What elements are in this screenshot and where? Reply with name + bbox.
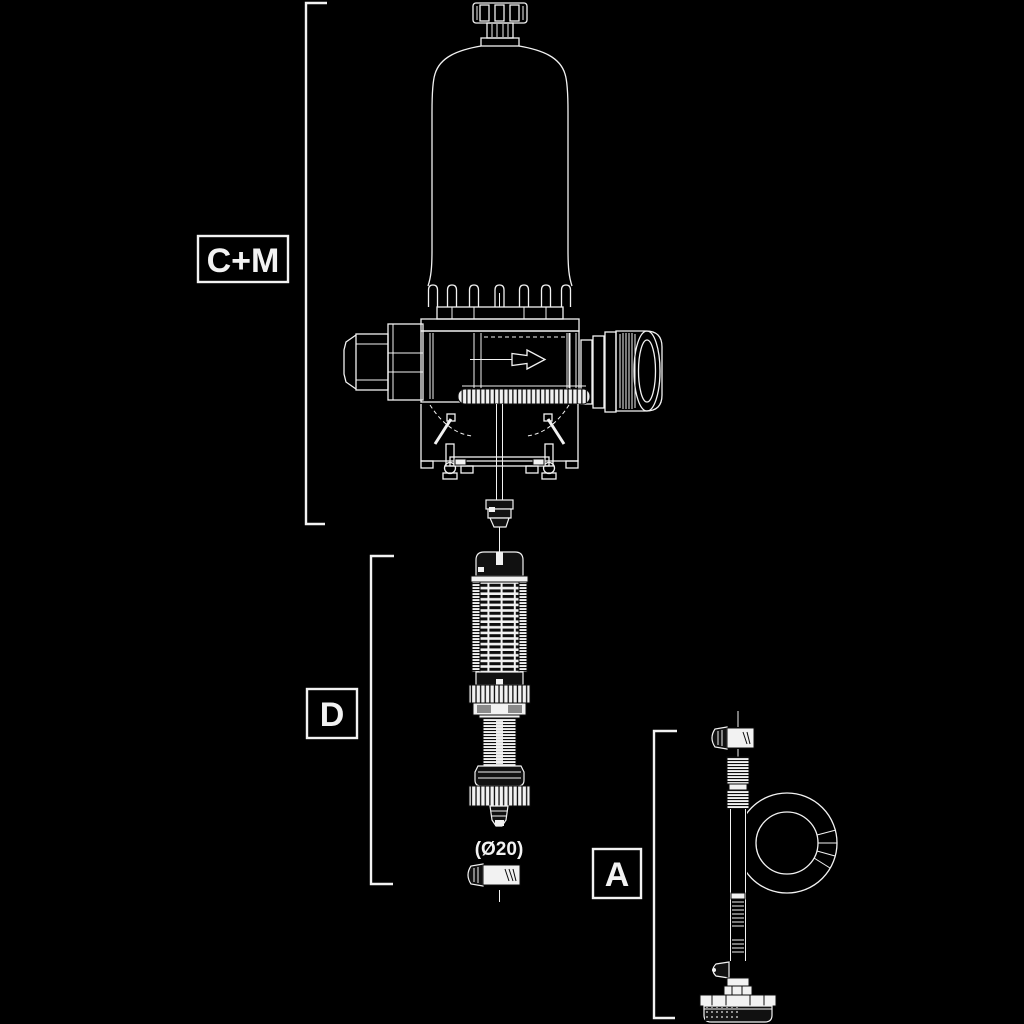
cylinder-top-cap xyxy=(476,552,523,576)
bracket-line-a xyxy=(654,731,677,1018)
diameter-note: (Ø20) xyxy=(475,839,524,860)
tube-joint xyxy=(729,784,747,790)
cylinder-bottom-cap xyxy=(476,672,523,685)
label-a: A xyxy=(605,856,630,894)
mounting-clamp xyxy=(421,404,578,500)
hose-barb-fitting-top xyxy=(712,727,754,749)
adjustment-knob xyxy=(473,3,527,46)
label-d: D xyxy=(320,696,345,734)
tube-rib-marks-upper xyxy=(732,902,744,926)
dimension-bracket-c-m: C+M xyxy=(198,3,327,524)
right-outlet-connector xyxy=(581,331,662,412)
label-c-m: C+M xyxy=(207,242,280,280)
technical-diagram: C+M D A xyxy=(0,0,1024,1024)
pump-collar xyxy=(421,307,579,331)
dimension-bracket-d: D xyxy=(307,556,394,884)
bracket-line-d xyxy=(371,556,394,884)
diagram-canvas: C+M D A xyxy=(0,0,1024,1024)
tube-ribbed-segment-1 xyxy=(727,757,749,784)
suction-tube xyxy=(729,809,747,961)
threaded-shaft xyxy=(483,718,516,766)
tube-side-clip xyxy=(712,962,729,978)
knurled-nut-lower xyxy=(469,786,530,806)
valve-flare xyxy=(475,766,524,786)
suction-tube-assembly xyxy=(700,711,837,1022)
valve-collar xyxy=(473,703,526,718)
tube-ribbed-segment-2 xyxy=(727,790,749,809)
pump-bottom-flange xyxy=(458,389,590,404)
pump-outlet-fitting xyxy=(486,500,513,552)
dosing-cylinder-ribbed xyxy=(472,582,527,672)
dimension-bracket-a: A xyxy=(593,731,677,1018)
hose-barb-fitting-center xyxy=(468,864,520,902)
suction-assembly: (Ø20) xyxy=(468,552,530,902)
injection-valve-tip xyxy=(490,806,508,826)
bell-skirt-ribs xyxy=(429,285,571,307)
bracket-line-c-m xyxy=(306,3,327,524)
pump-bell-housing xyxy=(428,46,572,286)
suction-hose-coil xyxy=(737,793,837,893)
left-inlet-connector xyxy=(344,324,423,400)
knurled-nut-upper xyxy=(469,685,530,703)
strainer-foot-valve xyxy=(700,978,776,1022)
outlet-thread-hatching xyxy=(620,333,635,409)
cylinder-rim xyxy=(471,576,528,582)
dosing-pump-assembly xyxy=(344,3,662,552)
